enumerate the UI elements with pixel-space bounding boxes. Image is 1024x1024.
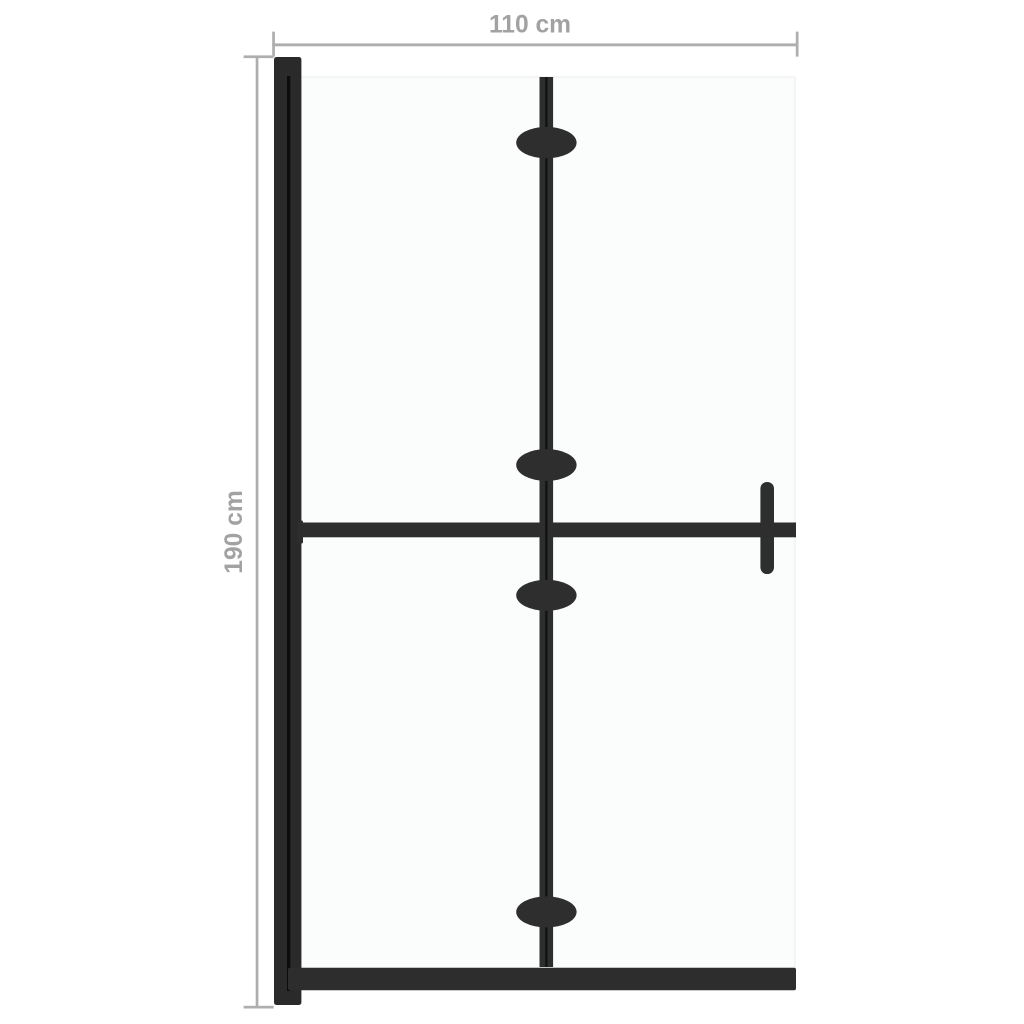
svg-text:190 cm: 190 cm (221, 490, 248, 573)
svg-text:110 cm: 110 cm (489, 12, 571, 39)
